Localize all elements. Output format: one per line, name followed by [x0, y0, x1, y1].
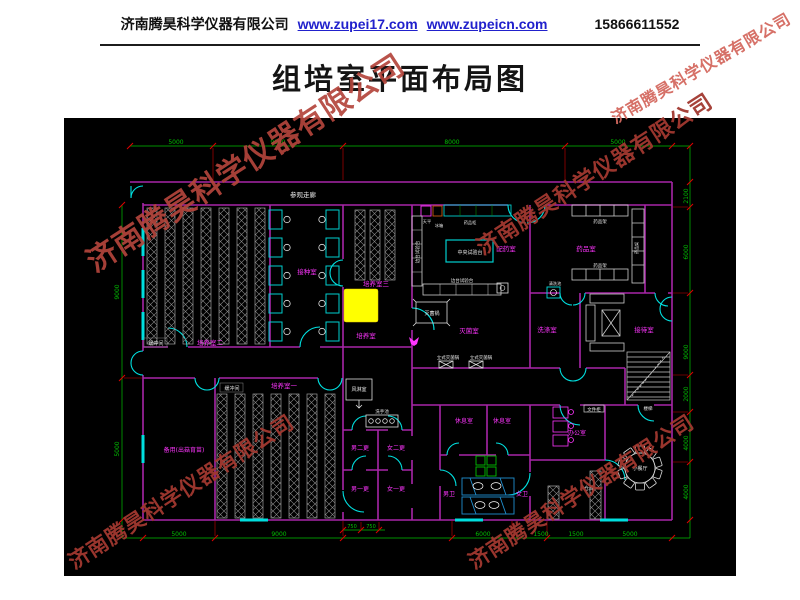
floorplan-canvas: 5000 9000 8000 5000 9000 5000 2100 6000 …	[64, 118, 736, 576]
label-dining: 小餐厅	[632, 465, 647, 472]
label-file-cabinet: 文件柜	[587, 406, 601, 413]
label-balance: 天平	[423, 219, 431, 225]
dim-top-3: 8000	[444, 139, 459, 146]
dim-left-1: 9000	[114, 284, 121, 299]
label-storage: 仓库	[584, 485, 594, 492]
label-male-wc: 男卫	[443, 491, 455, 498]
label-wash-pool: 清洗池	[549, 280, 562, 287]
label-culture-room-3: 培养室三	[363, 279, 390, 288]
storage-shelves	[548, 471, 601, 519]
dim-bottom-1: 5000	[171, 531, 186, 538]
dim-right-6: 4000	[683, 484, 690, 499]
header-divider	[100, 44, 700, 46]
stairs	[627, 352, 670, 400]
dim-right-2: 6000	[683, 244, 690, 259]
label-autoclave: 灭菌锅	[424, 310, 439, 317]
label-office: 办公室	[568, 429, 586, 437]
label-reception-room: 接待室	[634, 325, 654, 334]
label-chemical-rack-a: 药品架	[593, 218, 607, 225]
label-vertical-autoclave-b: 立式灭菌锅	[470, 354, 493, 361]
label-stairs: 楼梯	[644, 405, 653, 412]
dim-right-3: 9000	[683, 344, 690, 359]
label-buffer-b: 缓冲间	[224, 385, 239, 392]
phone-number: 15866611552	[595, 16, 680, 32]
label-chemical-rack-c: 药品架	[633, 242, 639, 254]
website-link-2[interactable]: www.zupeicn.com	[427, 16, 548, 32]
label-vertical-autoclave-a: 立式灭菌锅	[437, 354, 460, 361]
label-male-change-2: 男二更	[351, 445, 369, 452]
dim-left-2: 5000	[114, 441, 121, 456]
label-male-change-1: 男一更	[351, 486, 369, 493]
label-culture-room-1: 培养室一	[271, 381, 298, 390]
dim-top-1: 5000	[168, 139, 183, 146]
dim-bottom-8: 5000	[622, 531, 637, 538]
sofa-set	[586, 294, 624, 351]
label-fridge: 冰箱	[435, 222, 443, 229]
label-side-bench-b: 边台试验台	[451, 277, 474, 284]
label-female-wc: 女卫	[516, 490, 528, 498]
company-name: 济南腾昊科学仪器有限公司	[121, 14, 289, 34]
dim-right-4: 2000	[683, 386, 690, 401]
dim-bottom-5: 6000	[475, 531, 490, 538]
label-culture-room: 培养室	[356, 331, 376, 340]
dim-bottom-7: 1500	[568, 531, 583, 538]
label-chemical-rack-b: 药品架	[593, 262, 607, 269]
label-spare-room: 备用(出菇育苗)	[164, 446, 205, 454]
dim-bottom-6: 1500	[533, 531, 548, 538]
label-rest-room-b: 休息室	[493, 417, 511, 425]
label-chemical-room: 药品室	[576, 244, 596, 253]
label-central-bench: 中央试验台	[457, 249, 482, 256]
label-sterilization-room: 灭菌室	[459, 326, 479, 335]
page-title: 组培室平面布局图	[0, 56, 800, 98]
label-rest-room-a: 休息室	[455, 417, 473, 425]
distiller-icon	[409, 337, 419, 346]
header: 济南腾昊科学仪器有限公司 www.zupei17.com www.zupeicn…	[0, 14, 800, 34]
door-arcs	[131, 186, 672, 512]
label-media-room: 配药室	[496, 244, 516, 253]
dim-right-5: 4000	[683, 435, 690, 450]
label-buffer-a: 缓冲间	[148, 340, 163, 347]
label-female-change-1: 女一更	[387, 485, 405, 493]
dim-bottom-2: 9000	[271, 531, 286, 538]
toilet-fixtures	[462, 456, 514, 514]
label-culture-room-2: 培养室二	[197, 338, 224, 347]
dim-top-4: 5000	[610, 139, 625, 146]
highlight-marker[interactable]	[344, 289, 378, 322]
floorplan-drawing: 5000 9000 8000 5000 9000 5000 2100 6000 …	[64, 118, 736, 576]
label-washing-room: 洗涤室	[537, 325, 557, 334]
label-air-shower: 风淋室	[351, 386, 366, 393]
label-side-bench-a: 边台试验台	[414, 240, 421, 263]
dim-bottom-4: 750	[366, 524, 376, 530]
page: 济南腾昊科学仪器有限公司 www.zupei17.com www.zupeicn…	[0, 0, 800, 600]
label-female-change-2: 女二更	[387, 444, 405, 452]
label-corridor: 参观走廊	[290, 190, 317, 199]
office-desks	[553, 407, 574, 446]
dim-top-2: 9000	[270, 139, 285, 146]
dim-right-1: 2100	[683, 188, 690, 203]
culture-racks	[147, 208, 395, 518]
dim-bottom-3: 750	[347, 524, 357, 530]
label-hand-sink: 洗手池	[375, 408, 389, 415]
label-chemical-cabinet: 药品柜	[464, 219, 477, 226]
website-link-1[interactable]: www.zupei17.com	[298, 16, 418, 32]
label-inoculation-room: 接种室	[297, 267, 317, 276]
